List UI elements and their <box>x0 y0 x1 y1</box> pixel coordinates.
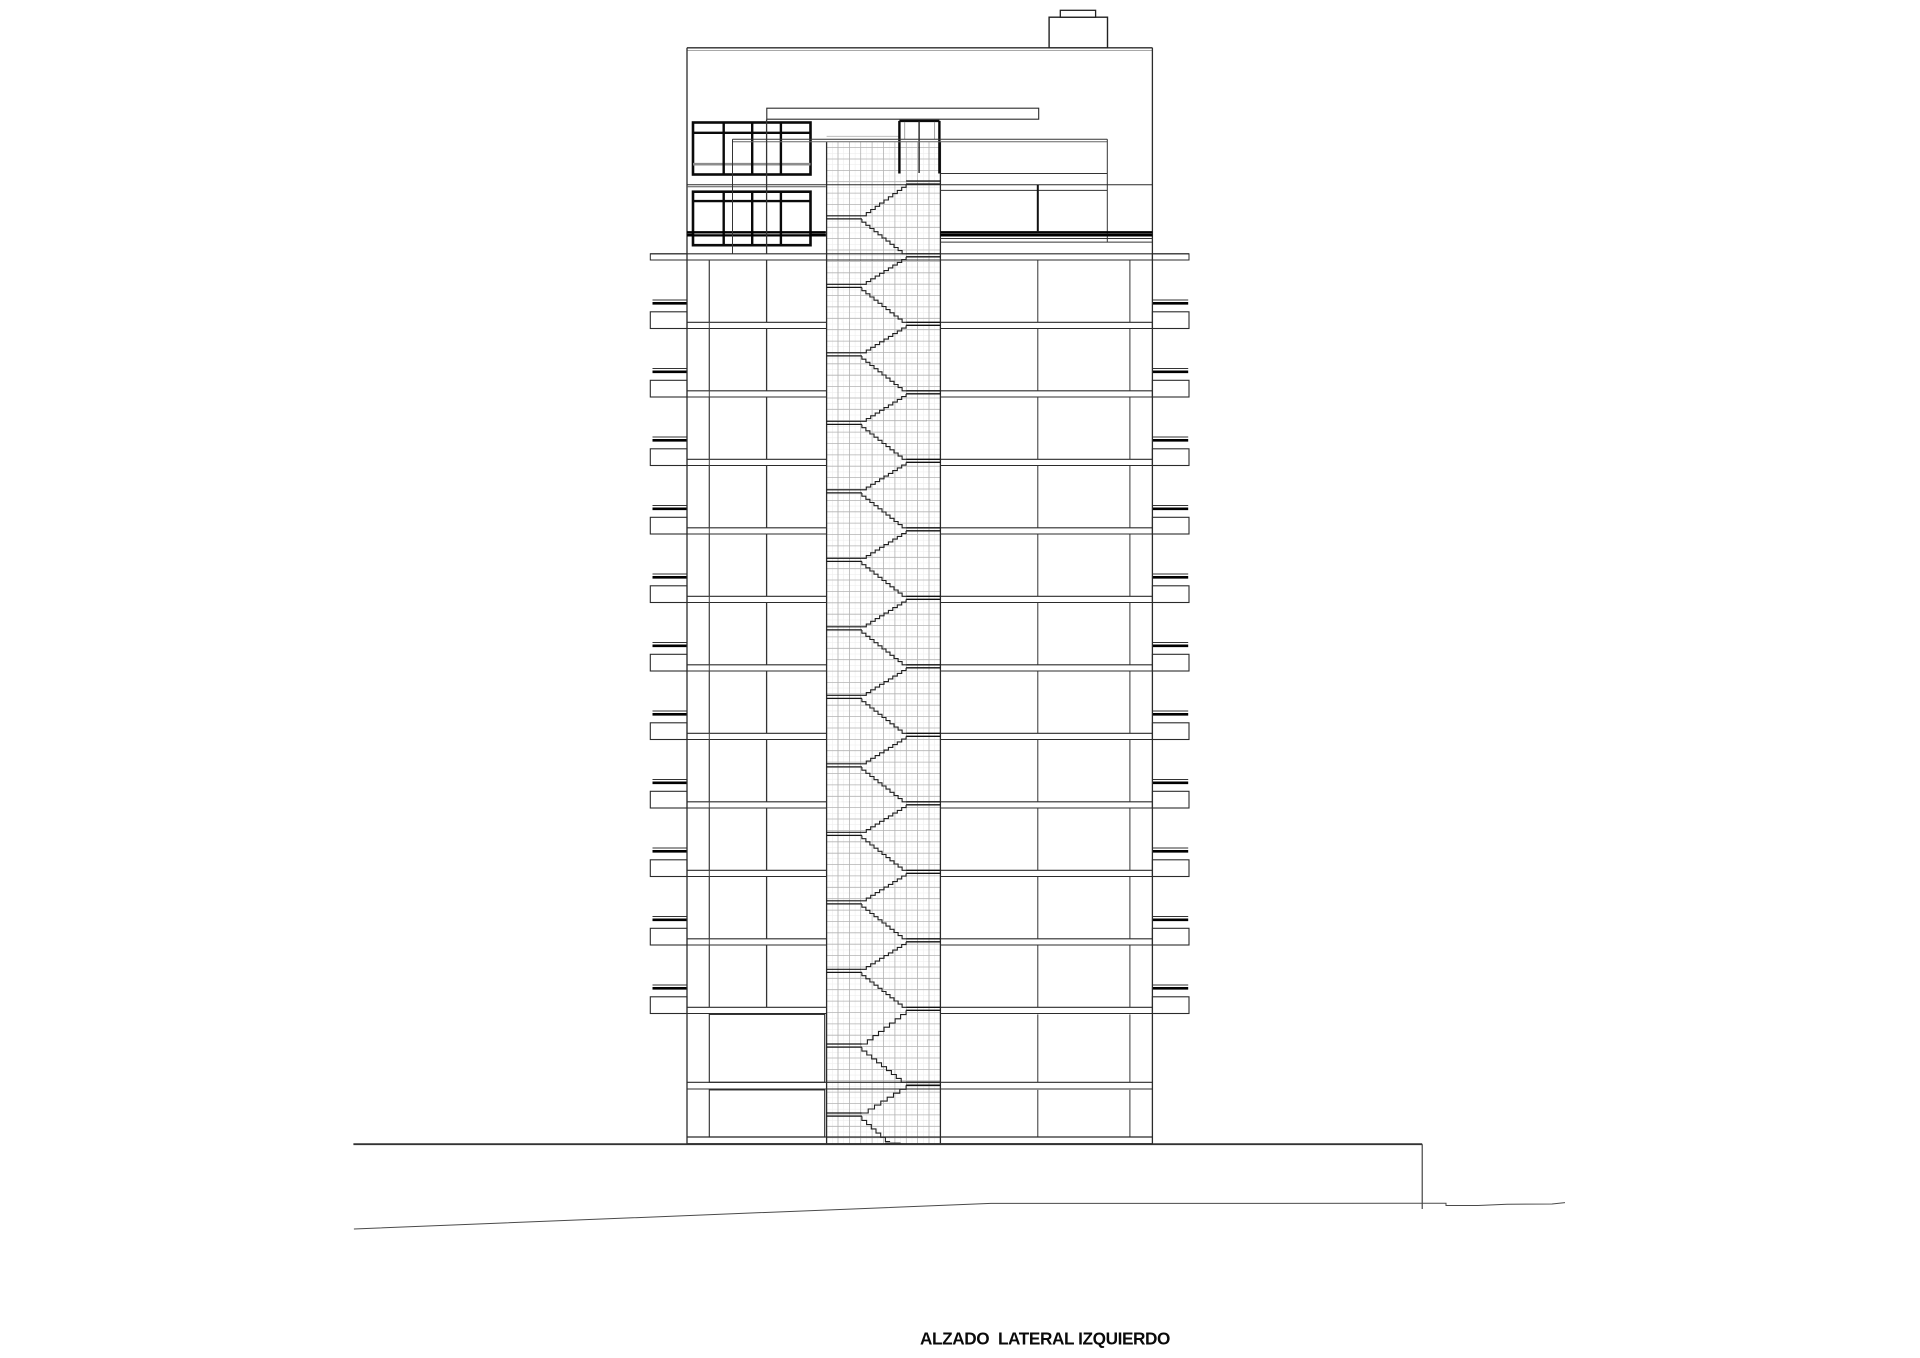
svg-text:ALZADO LATERAL IZQUIERDO: ALZADO LATERAL IZQUIERDO <box>920 1328 1170 1348</box>
